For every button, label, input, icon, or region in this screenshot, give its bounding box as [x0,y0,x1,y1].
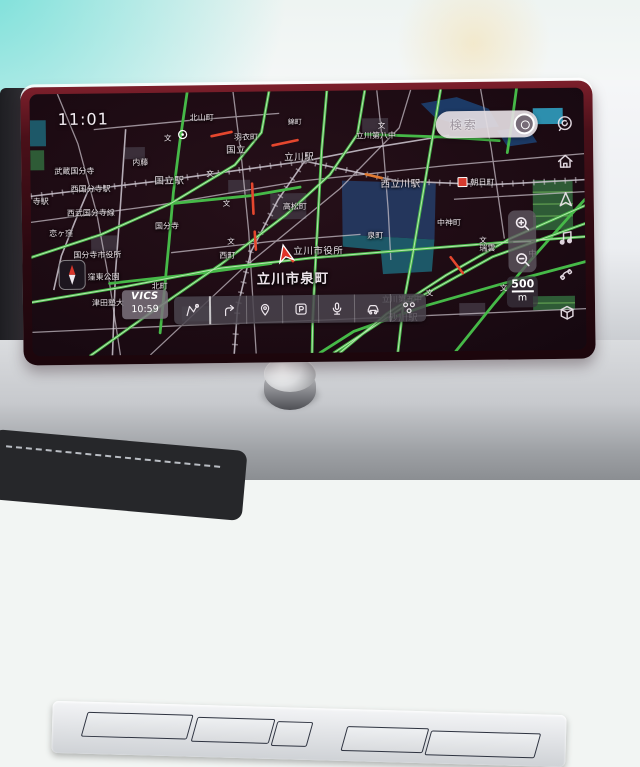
parking-icon [292,301,308,317]
turn-arrow-icon [220,302,236,318]
toolbar-button-route[interactable] [174,296,209,324]
phone-icon[interactable] [557,266,577,286]
search-button[interactable]: 検索 [436,110,538,138]
divider [513,241,531,242]
school-symbol: 文 [223,198,231,209]
dashboard-photo: 北山町錦町羽衣町国立立川第八中内藤武蔵国分寺立川駅国立駅西国分寺駅西立川駅朝日町… [0,0,640,480]
vics-badge: VICS 10:59 [122,290,168,320]
zoom-out-icon[interactable] [514,251,531,268]
zoom-panel [508,210,537,272]
hw-button-1[interactable] [81,712,194,740]
toolbar-button-parking[interactable] [282,295,318,323]
zoom-in-icon[interactable] [513,215,530,232]
school-symbol: 文 [378,120,386,131]
car-icon [364,300,380,316]
mic-icon[interactable] [514,113,535,134]
screen-bezel: 北山町錦町羽衣町国立立川第八中内藤武蔵国分寺立川駅国立駅西国分寺駅西立川駅朝日町… [20,81,595,366]
nav-screen[interactable]: 北山町錦町羽衣町国立立川第八中内藤武蔵国分寺立川駅国立駅西国分寺駅西立川駅朝日町… [29,88,586,357]
search-label: 検索 [450,116,478,133]
map-poi-marker [457,177,467,187]
school-symbol: 文 [426,287,434,298]
compass-icon[interactable] [58,260,85,290]
scale-value: 500 [511,277,533,292]
toolbar-button-poi[interactable] [390,294,426,322]
toolbar-button-pin[interactable] [246,295,282,323]
route-icon [183,302,199,318]
sidebar [552,114,581,324]
music-icon[interactable] [556,228,576,248]
toolbar-button-traffic[interactable] [354,294,390,322]
hw-button-5[interactable] [424,730,541,758]
vics-label: VICS [122,290,168,305]
map-toolbar [174,294,426,325]
poi-dots-icon [400,300,416,316]
mic-icon [328,301,344,317]
stitching [6,445,220,468]
school-symbol: 文 [164,133,172,144]
clock: 11:01 [58,109,109,129]
vics-time: 10:59 [122,304,168,317]
voice-assistant-icon[interactable] [555,114,575,134]
home-icon[interactable] [555,152,575,172]
hw-button-3[interactable] [271,721,314,747]
toolbar-button-guidance[interactable] [209,296,246,324]
toolbar-button-voice[interactable] [318,294,354,322]
school-symbol: 文 [479,235,487,246]
school-symbol: 文 [206,168,214,179]
hw-button-2[interactable] [191,717,276,744]
school-symbol: 文 [227,236,235,247]
navigation-icon[interactable] [556,190,576,210]
apps-cube-icon[interactable] [557,304,577,324]
scale-unit: m [507,292,538,304]
pin-icon [256,301,272,317]
map-scale: 500 m [507,276,538,307]
hw-button-4[interactable] [340,726,429,753]
leather-trim [0,429,248,521]
hardware-trim-strip [51,701,566,767]
